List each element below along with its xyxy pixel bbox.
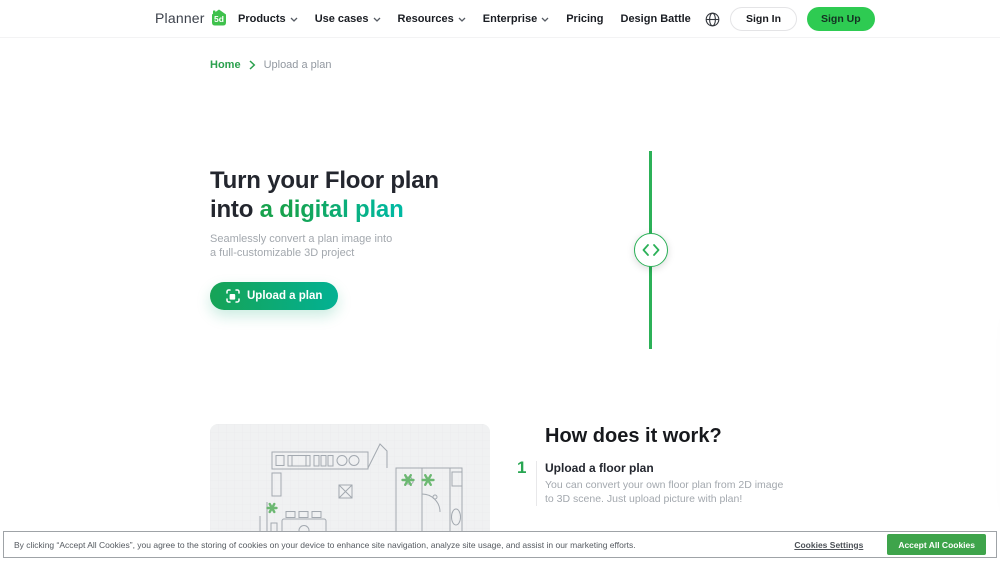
chevron-down-icon: [458, 17, 466, 22]
breadcrumb-current: Upload a plan: [264, 59, 332, 71]
upload-plan-button[interactable]: Upload a plan: [210, 282, 338, 310]
chevron-down-icon: [541, 17, 549, 22]
nav-item-pricing[interactable]: Pricing: [566, 13, 603, 25]
header-actions: Sign In Sign Up: [705, 0, 875, 38]
hero-subtitle: Seamlessly convert a plan image into a f…: [210, 232, 392, 260]
breadcrumb-chevron-icon: [249, 60, 256, 70]
breadcrumb-home-link[interactable]: Home: [210, 59, 241, 71]
logo-text: Planner: [155, 10, 205, 26]
accept-cookies-button[interactable]: Accept All Cookies: [887, 534, 986, 555]
step-divider: [536, 461, 537, 506]
how-it-works-heading: How does it work?: [545, 425, 722, 448]
main-nav: Products Use cases Resources Enterprise …: [238, 0, 691, 38]
step-number: 1: [517, 458, 526, 478]
page-title: Turn your Floor plan into a digital plan: [210, 167, 439, 224]
chevron-down-icon: [373, 17, 381, 22]
cookie-message: By clicking “Accept All Cookies”, you ag…: [14, 540, 782, 550]
step-description: You can convert your own floor plan from…: [545, 478, 783, 506]
step-title: Upload a floor plan: [545, 461, 654, 475]
nav-item-use-cases[interactable]: Use cases: [315, 13, 381, 25]
title-line1: Turn your Floor plan: [210, 167, 439, 196]
chevron-down-icon: [290, 17, 298, 22]
breadcrumb: Home Upload a plan: [210, 59, 331, 71]
comparison-card: [512, 151, 789, 349]
cookies-settings-link[interactable]: Cookies Settings: [794, 540, 863, 550]
logo-house-icon: 5d: [209, 8, 229, 27]
comparison-slider-handle[interactable]: [634, 233, 668, 267]
top-navbar: Planner 5d Products Use cases Resources …: [0, 0, 1000, 38]
nav-item-design-battle[interactable]: Design Battle: [621, 13, 691, 25]
svg-text:5d: 5d: [214, 14, 224, 24]
nav-item-products[interactable]: Products: [238, 13, 298, 25]
sign-in-button[interactable]: Sign In: [730, 7, 797, 31]
planner-logo[interactable]: Planner 5d: [155, 8, 229, 27]
cookie-banner: By clicking “Accept All Cookies”, you ag…: [3, 531, 997, 558]
upload-plan-icon: [226, 289, 240, 303]
title-highlight: a digital plan: [260, 196, 404, 223]
language-globe-icon[interactable]: [705, 12, 720, 27]
title-line2: into a digital plan: [210, 196, 439, 225]
sign-up-button[interactable]: Sign Up: [807, 7, 875, 31]
nav-item-resources[interactable]: Resources: [398, 13, 466, 25]
compare-arrows-icon: [642, 244, 660, 256]
nav-item-enterprise[interactable]: Enterprise: [483, 13, 549, 25]
